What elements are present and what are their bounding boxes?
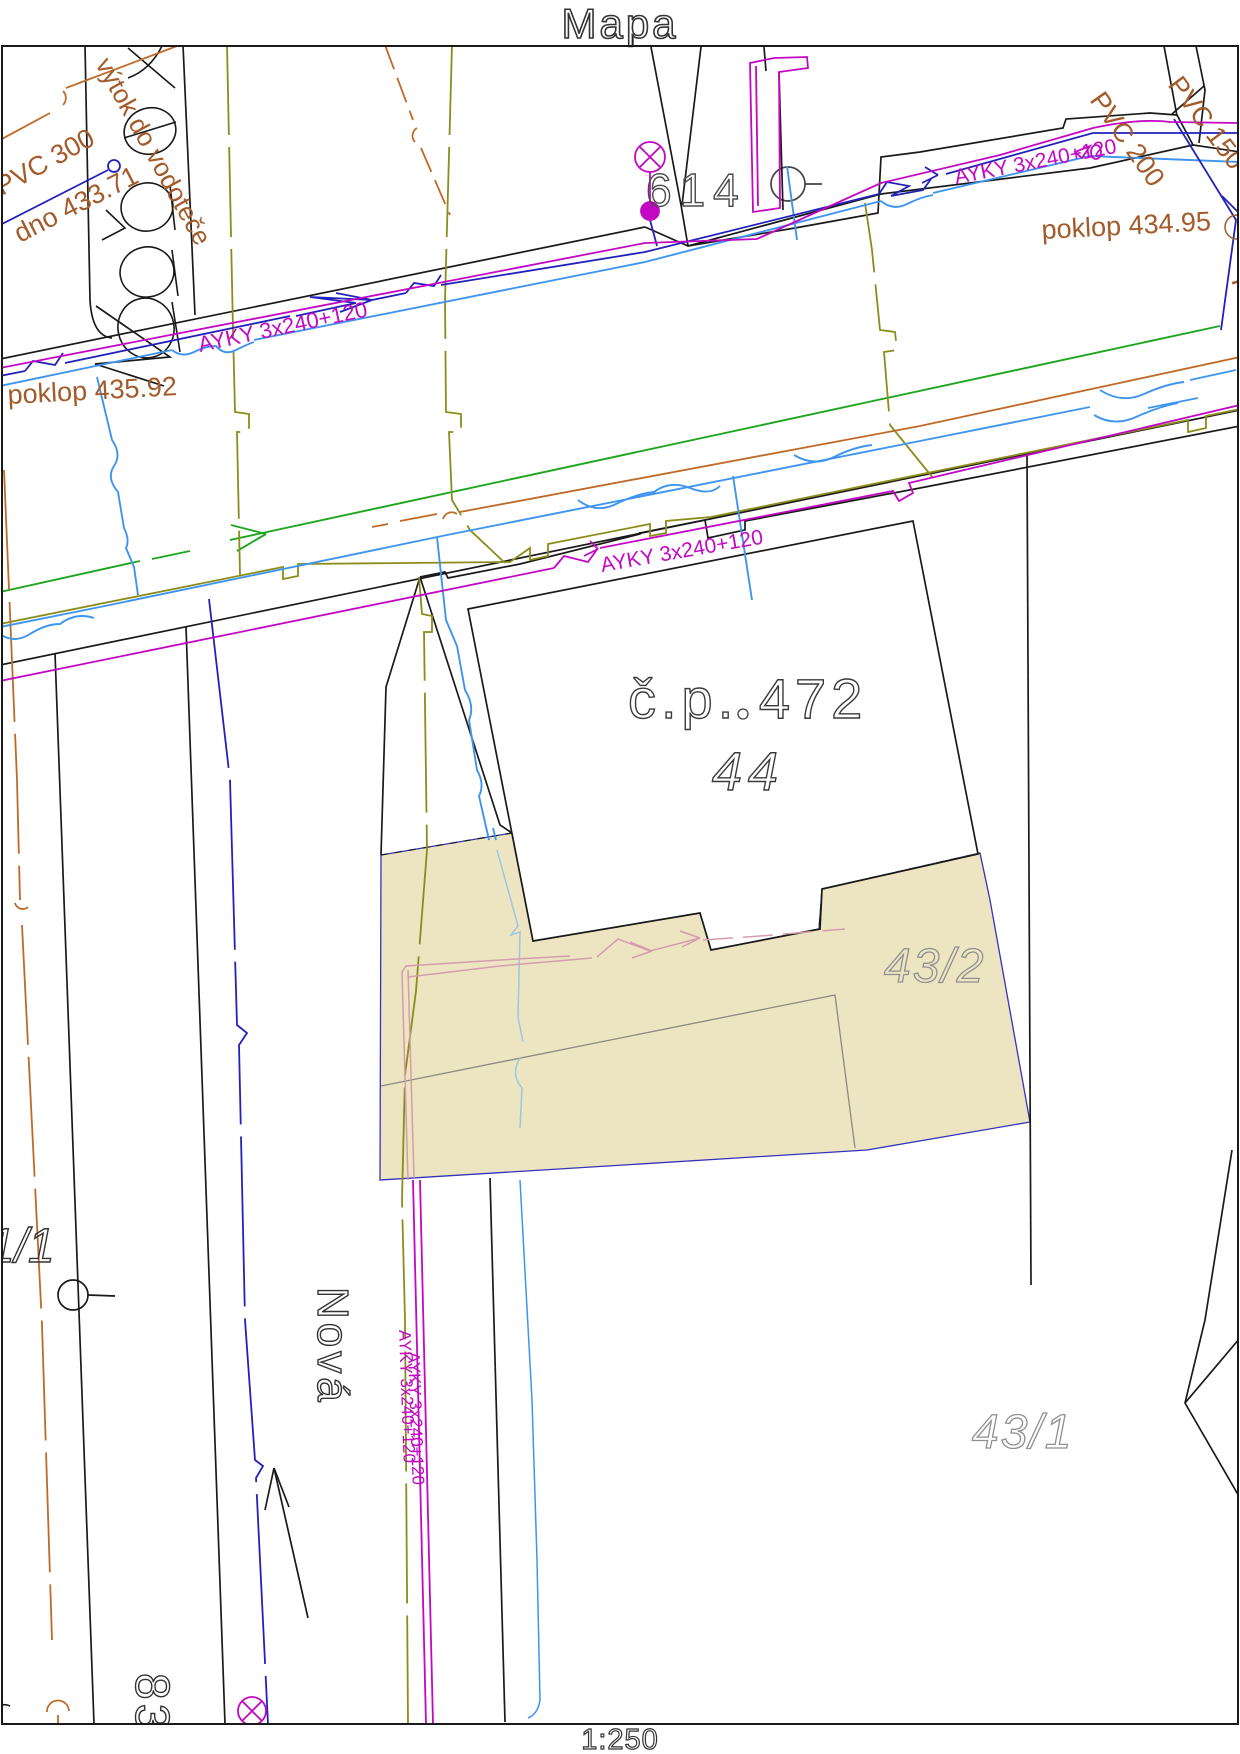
svg-text:č.p. 472: č.p. 472 xyxy=(628,667,867,730)
svg-text:43/1: 43/1 xyxy=(972,1406,1073,1459)
svg-text:44: 44 xyxy=(712,742,784,802)
svg-text:1:250: 1:250 xyxy=(581,1724,659,1754)
svg-text:1/1: 1/1 xyxy=(0,1220,55,1273)
svg-text:614: 614 xyxy=(646,164,747,216)
svg-text:Nová: Nová xyxy=(308,1287,357,1406)
svg-text:Mapa: Mapa xyxy=(561,0,678,47)
svg-text:43/2: 43/2 xyxy=(884,940,985,993)
